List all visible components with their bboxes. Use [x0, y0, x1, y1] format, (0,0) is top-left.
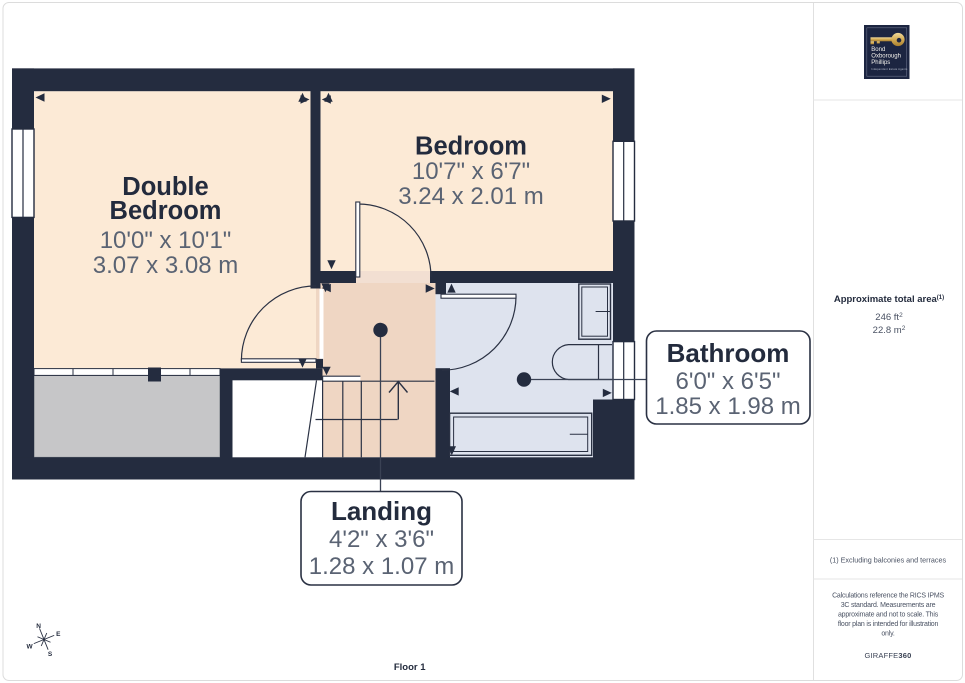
svg-text:Bond: Bond	[871, 47, 885, 53]
svg-text:floor plan is intended for ill: floor plan is intended for illustration	[838, 621, 939, 628]
svg-text:Oxborough: Oxborough	[871, 53, 901, 59]
svg-text:4'2" x 3'6": 4'2" x 3'6"	[329, 526, 434, 553]
svg-text:N: N	[36, 623, 41, 630]
svg-text:246 ft2: 246 ft2	[875, 312, 903, 323]
svg-text:Phillips: Phillips	[871, 60, 890, 66]
svg-text:3C standard. Measurements are: 3C standard. Measurements are	[841, 602, 936, 609]
svg-text:S: S	[48, 651, 53, 658]
svg-text:Landing: Landing	[331, 496, 432, 526]
svg-text:3.24 x 2.01 m: 3.24 x 2.01 m	[398, 183, 543, 210]
svg-text:1.28 x 1.07 m: 1.28 x 1.07 m	[309, 553, 454, 580]
svg-text:Bathroom: Bathroom	[667, 338, 790, 368]
svg-text:Calculations reference the RIC: Calculations reference the RICS IPMS	[832, 593, 944, 600]
svg-text:only.: only.	[881, 631, 895, 638]
svg-text:Independent Estate Agents: Independent Estate Agents	[871, 67, 908, 71]
svg-text:1.85 x 1.98 m: 1.85 x 1.98 m	[655, 393, 800, 420]
svg-text:GIRAFFE360: GIRAFFE360	[864, 651, 911, 660]
svg-text:Floor 1: Floor 1	[394, 662, 426, 673]
svg-text:22.8 m2: 22.8 m2	[873, 325, 906, 336]
svg-text:Approximate total area(1): Approximate total area(1)	[834, 294, 944, 305]
svg-text:3.07 x 3.08 m: 3.07 x 3.08 m	[93, 252, 238, 279]
svg-text:Bedroom: Bedroom	[110, 197, 222, 225]
svg-text:10'0" x 10'1": 10'0" x 10'1"	[100, 227, 232, 254]
svg-text:E: E	[56, 631, 61, 638]
svg-text:W: W	[27, 643, 34, 650]
svg-text:6'0" x 6'5": 6'0" x 6'5"	[676, 368, 781, 395]
svg-text:Bedroom: Bedroom	[415, 133, 527, 161]
svg-text:10'7" x 6'7": 10'7" x 6'7"	[412, 158, 530, 185]
svg-text:(1) Excluding balconies and te: (1) Excluding balconies and terraces	[830, 556, 947, 565]
svg-text:approximate and not to scale.: approximate and not to scale. This	[838, 612, 939, 619]
